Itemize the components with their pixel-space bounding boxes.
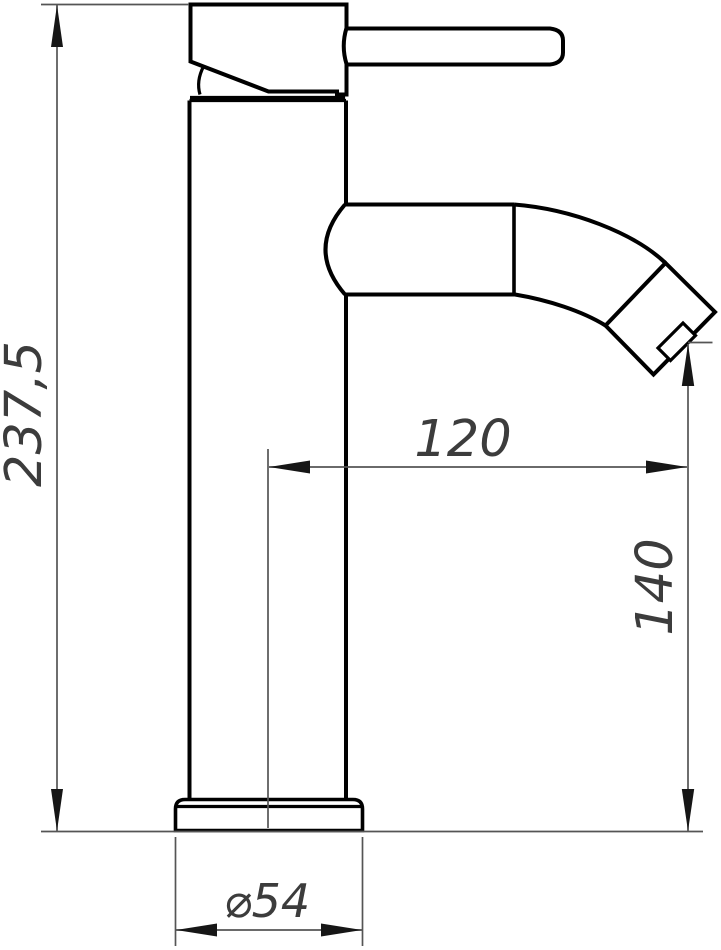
dimension-overall-height: 237,5 <box>0 5 703 832</box>
spout <box>326 205 716 375</box>
dimension-arrow-up <box>682 344 694 386</box>
dimension-arrow-down <box>51 789 63 831</box>
handle-skirt-arc <box>199 67 204 95</box>
spout-tip-section <box>606 263 716 375</box>
dimension-base-diameter: ⌀54 <box>176 837 363 946</box>
base-flange <box>176 800 363 831</box>
handle-lever <box>345 29 563 65</box>
flange-outline <box>176 800 363 831</box>
dimension-arrow-right <box>646 461 687 474</box>
dimension-arrow-left <box>176 924 217 937</box>
spout-outer-curve <box>514 205 666 264</box>
technical-drawing: 237,5 120 140 ⌀54 <box>0 0 721 950</box>
handle-block <box>191 5 347 95</box>
dimension-arrow-right <box>321 924 362 937</box>
spout-base-cap-arc <box>326 205 346 295</box>
dimension-label-outlet-height: 140 <box>626 538 685 635</box>
faucet-drawing-svg: 237,5 120 140 ⌀54 <box>0 0 721 950</box>
dimension-label-spout-reach: 120 <box>414 410 511 469</box>
dimension-arrow-left <box>269 461 310 474</box>
spout-inner-curve <box>515 295 606 326</box>
dimension-spout-reach: 120 <box>268 410 687 828</box>
dimension-label-base-diameter: ⌀54 <box>224 874 310 928</box>
dimension-label-overall-height: 237,5 <box>0 341 54 487</box>
dimension-arrow-up <box>51 5 63 47</box>
dimension-outlet-height: 140 <box>626 343 713 832</box>
dimension-arrow-down <box>682 789 694 831</box>
